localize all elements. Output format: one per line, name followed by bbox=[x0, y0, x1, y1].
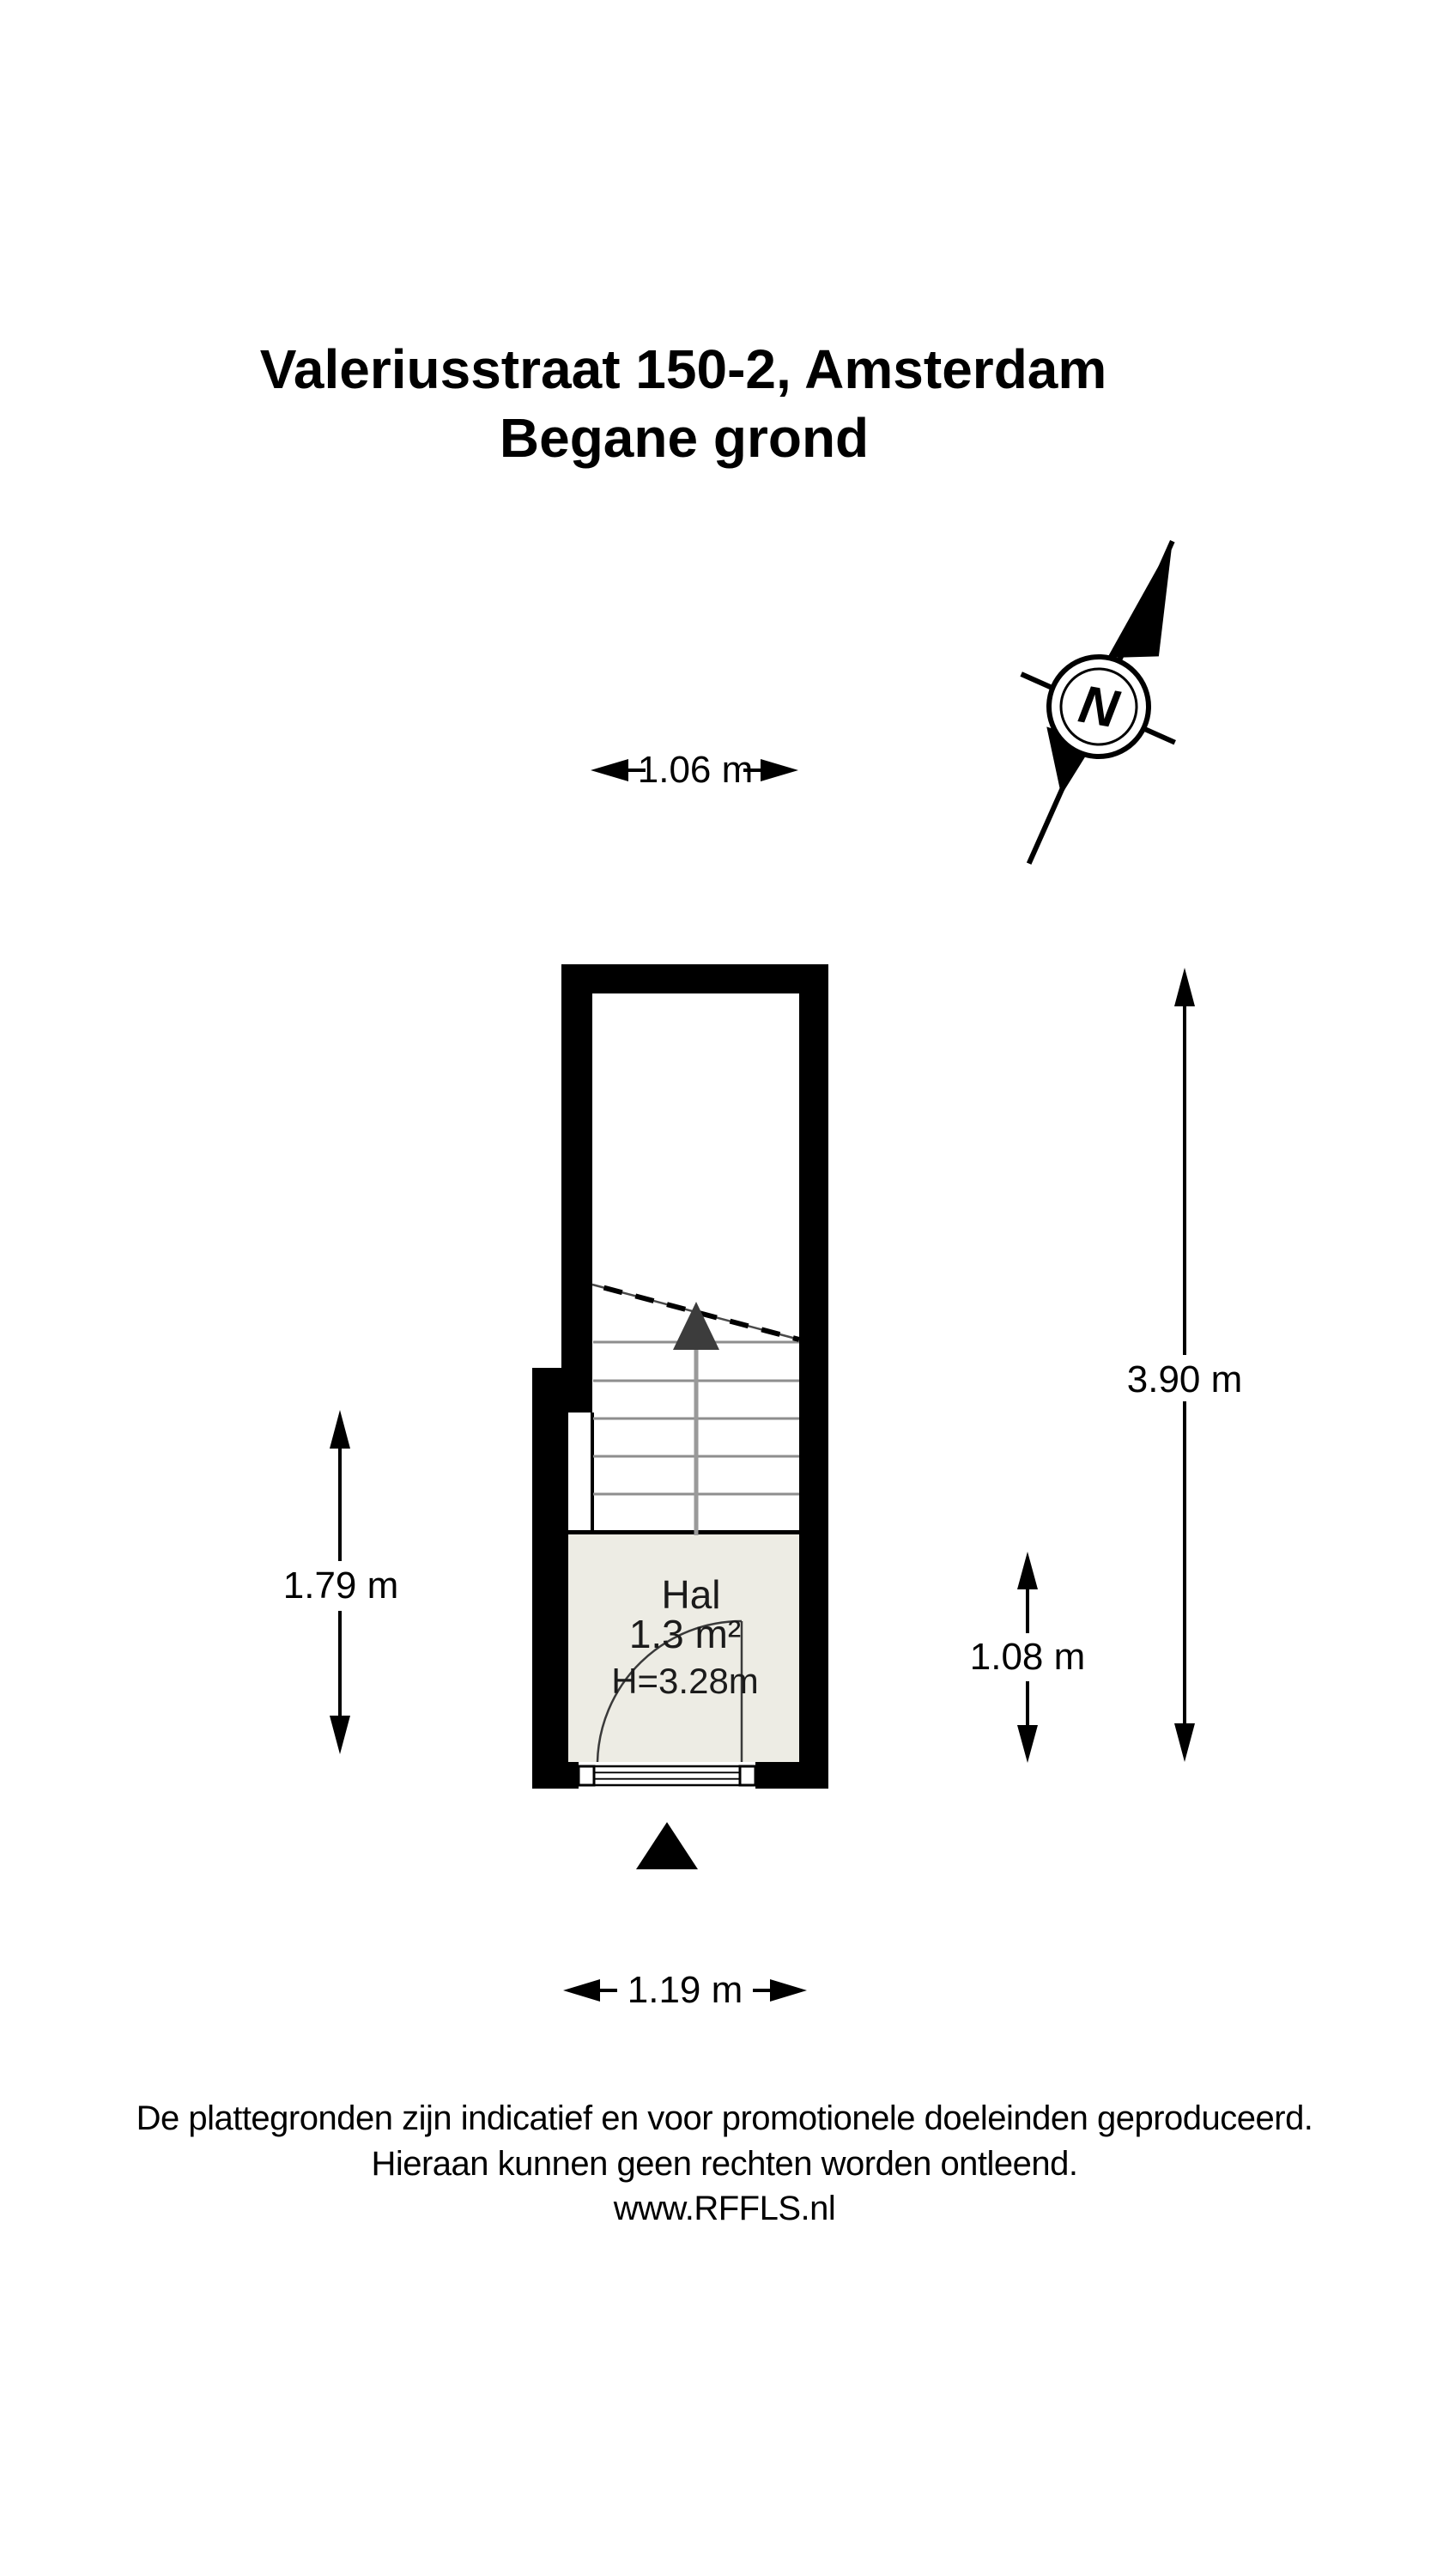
footer-website-label: www.RFFLS.nl bbox=[614, 2191, 836, 2226]
arrow-right-icon bbox=[770, 1979, 807, 2002]
staircase bbox=[592, 1285, 799, 1535]
floorplan-hall bbox=[532, 964, 828, 1869]
arrow-down-icon bbox=[1017, 1725, 1038, 1763]
dimension-right-height-label: 3.90 m bbox=[1127, 1361, 1243, 1399]
page-subtitle: Begane grond bbox=[500, 410, 869, 466]
footer-disclaimer-line2: Hieraan kunnen geen rechten worden ontle… bbox=[371, 2147, 1077, 2181]
dimension-hall-height-label: 1.08 m bbox=[970, 1638, 1086, 1676]
room-ceiling-height-label: H=3.28m bbox=[611, 1663, 759, 1699]
wall-bottom-left bbox=[532, 1762, 579, 1789]
arrow-up-icon bbox=[1017, 1552, 1038, 1589]
door-post-right bbox=[740, 1766, 755, 1785]
wall-right bbox=[799, 964, 828, 1789]
room-name-label: Hal bbox=[661, 1575, 720, 1614]
arrow-up-icon bbox=[330, 1410, 350, 1449]
dimension-bottom-width-label: 1.19 m bbox=[627, 1971, 743, 2009]
arrow-left-icon bbox=[563, 1979, 600, 2002]
arrow-down-icon bbox=[1174, 1723, 1195, 1762]
dimension-left-height-label: 1.79 m bbox=[283, 1567, 399, 1605]
door-post-left bbox=[579, 1766, 594, 1785]
floorplan-page: N bbox=[0, 0, 1449, 2576]
arrow-up-icon bbox=[1174, 968, 1195, 1006]
page-title: Valeriusstraat 150-2, Amsterdam bbox=[260, 341, 1107, 398]
door-threshold bbox=[594, 1766, 740, 1785]
entrance-marker-icon bbox=[636, 1822, 698, 1869]
wall-left-upper bbox=[561, 964, 592, 1413]
wall-bottom-right bbox=[755, 1762, 828, 1789]
arrow-left-icon bbox=[591, 759, 628, 781]
hall-top-boundary-line bbox=[568, 1530, 799, 1534]
room-area-label: 1.3 m² bbox=[629, 1614, 741, 1654]
dimension-top-width-label: 1.06 m bbox=[638, 751, 754, 789]
niche-right-edge bbox=[591, 1413, 594, 1533]
compass-icon: N bbox=[952, 507, 1249, 897]
wall-left-bumpout bbox=[532, 1368, 568, 1789]
footer-disclaimer-line1: De plattegronden zijn indicatief en voor… bbox=[136, 2101, 1313, 2136]
wall-top bbox=[561, 964, 828, 993]
compass-north-arrow bbox=[1107, 537, 1203, 677]
arrow-down-icon bbox=[330, 1716, 350, 1754]
arrow-right-icon bbox=[761, 759, 798, 781]
